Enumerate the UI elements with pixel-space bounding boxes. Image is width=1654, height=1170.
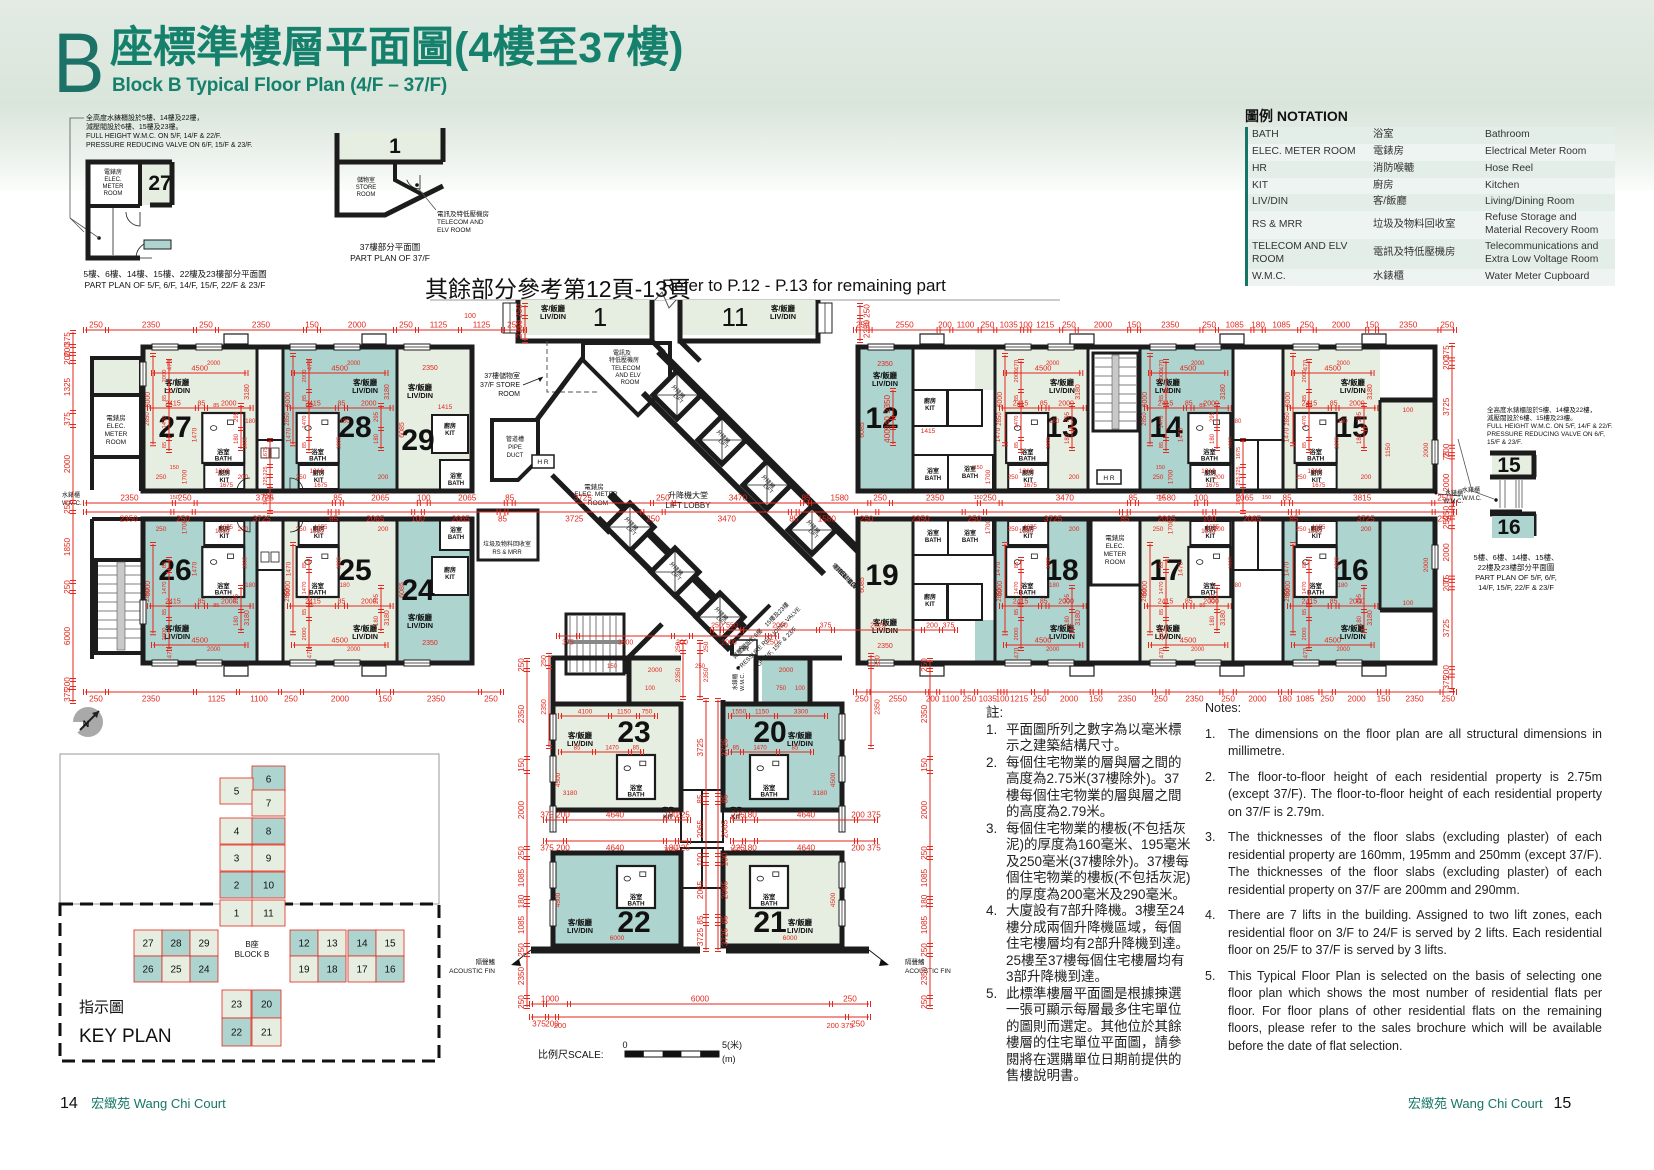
svg-text:1675: 1675 xyxy=(220,483,234,489)
svg-text:250: 250 xyxy=(1008,526,1019,533)
svg-text:4500: 4500 xyxy=(191,636,208,645)
svg-text:1310: 1310 xyxy=(1307,468,1322,475)
svg-text:2000: 2000 xyxy=(162,628,168,641)
svg-text:3725: 3725 xyxy=(696,927,705,946)
svg-text:1125: 1125 xyxy=(473,321,491,330)
svg-text:3725: 3725 xyxy=(574,494,593,503)
svg-text:2000: 2000 xyxy=(1302,628,1308,641)
svg-text:電錶房: 電錶房 xyxy=(1105,533,1125,542)
svg-text:廚房: 廚房 xyxy=(444,422,456,430)
svg-text:2000: 2000 xyxy=(721,640,737,647)
svg-text:295: 295 xyxy=(1210,593,1216,604)
svg-text:2550: 2550 xyxy=(895,321,914,330)
svg-text:85: 85 xyxy=(801,494,811,503)
svg-text:廚房: 廚房 xyxy=(924,593,936,601)
svg-text:250: 250 xyxy=(920,995,929,1009)
svg-text:200: 200 xyxy=(926,695,940,704)
svg-text:ELEC.: ELEC. xyxy=(104,177,122,183)
svg-text:ROOM: ROOM xyxy=(621,380,640,386)
svg-text:2350: 2350 xyxy=(863,319,872,338)
svg-text:1675: 1675 xyxy=(1023,483,1037,489)
svg-text:470: 470 xyxy=(1013,359,1020,370)
svg-text:H R: H R xyxy=(537,459,549,466)
svg-text:2000: 2000 xyxy=(1336,647,1350,653)
svg-text:470: 470 xyxy=(167,359,174,370)
svg-text:1605: 1605 xyxy=(337,437,343,449)
svg-text:2000: 2000 xyxy=(221,401,237,408)
svg-text:1125: 1125 xyxy=(430,321,448,330)
svg-text:2065: 2065 xyxy=(696,880,705,899)
svg-text:2065: 2065 xyxy=(1158,515,1177,524)
svg-text:2350: 2350 xyxy=(703,667,710,682)
svg-text:W.M.C.: W.M.C. xyxy=(1443,499,1463,505)
svg-text:37/F STORE: 37/F STORE xyxy=(480,382,520,389)
svg-text:13: 13 xyxy=(326,939,338,950)
svg-text:4500: 4500 xyxy=(1035,636,1052,645)
svg-text:ROOM: ROOM xyxy=(104,191,123,197)
svg-text:2000: 2000 xyxy=(1159,370,1165,383)
svg-text:3180: 3180 xyxy=(384,610,391,626)
svg-text:250: 250 xyxy=(1008,474,1019,481)
svg-text:2000: 2000 xyxy=(1046,647,1060,653)
svg-text:180: 180 xyxy=(1210,615,1216,626)
svg-text:減壓閥設於6樓、15樓及23樓。: 減壓閥設於6樓、15樓及23樓。 xyxy=(1487,413,1577,422)
svg-text:375: 375 xyxy=(943,623,955,630)
svg-text:1605: 1605 xyxy=(337,557,343,569)
svg-text:2000: 2000 xyxy=(1191,647,1205,653)
svg-text:250: 250 xyxy=(968,515,982,524)
svg-text:4640: 4640 xyxy=(797,844,816,853)
svg-text:2000: 2000 xyxy=(361,401,377,408)
svg-text:LIV/DIN: LIV/DIN xyxy=(872,379,898,388)
svg-text:1580: 1580 xyxy=(1157,494,1176,503)
svg-text:2000: 2000 xyxy=(1014,370,1020,383)
svg-text:2350: 2350 xyxy=(541,699,548,715)
svg-text:1675: 1675 xyxy=(1236,493,1242,505)
svg-text:85: 85 xyxy=(1014,395,1020,401)
svg-text:470: 470 xyxy=(307,647,314,658)
svg-text:ROOM: ROOM xyxy=(357,192,376,198)
svg-text:85: 85 xyxy=(162,442,168,448)
svg-text:180: 180 xyxy=(1049,583,1060,589)
svg-text:295: 295 xyxy=(1065,411,1071,422)
svg-text:15: 15 xyxy=(1497,454,1521,477)
svg-text:250: 250 xyxy=(656,494,670,503)
svg-text:PIPE: PIPE xyxy=(508,445,522,451)
svg-text:3180: 3180 xyxy=(244,384,251,400)
svg-text:水錶櫃: 水錶櫃 xyxy=(731,673,739,690)
svg-text:23: 23 xyxy=(231,1000,243,1011)
svg-text:BATH: BATH xyxy=(215,456,232,463)
svg-text:3300: 3300 xyxy=(794,709,809,716)
svg-text:2350: 2350 xyxy=(1161,321,1180,330)
svg-text:2000: 2000 xyxy=(347,647,361,653)
svg-text:3180: 3180 xyxy=(813,790,828,797)
svg-text:KIT: KIT xyxy=(925,406,935,412)
svg-text:250: 250 xyxy=(1033,695,1047,704)
svg-text:2350: 2350 xyxy=(675,667,682,682)
svg-text:廚房: 廚房 xyxy=(924,397,936,405)
svg-text:150: 150 xyxy=(607,664,618,670)
svg-text:電錶房: 電錶房 xyxy=(104,168,122,176)
svg-text:4500: 4500 xyxy=(1324,636,1341,645)
svg-text:180: 180 xyxy=(1338,419,1349,425)
svg-text:電錶房: 電錶房 xyxy=(106,413,126,422)
svg-text:3180: 3180 xyxy=(1075,384,1082,400)
svg-text:3725: 3725 xyxy=(1044,515,1063,524)
svg-text:1085: 1085 xyxy=(517,915,526,934)
svg-text:1470: 1470 xyxy=(1014,416,1020,429)
svg-text:LIV/DIN: LIV/DIN xyxy=(540,312,566,321)
svg-text:6000: 6000 xyxy=(285,392,292,408)
svg-text:0: 0 xyxy=(622,1040,627,1050)
svg-text:250: 250 xyxy=(484,695,498,704)
svg-text:4640: 4640 xyxy=(797,811,816,820)
svg-text:2000: 2000 xyxy=(302,370,308,383)
svg-text:85: 85 xyxy=(1302,442,1308,448)
svg-text:29: 29 xyxy=(401,424,434,457)
svg-text:2000: 2000 xyxy=(1060,695,1079,704)
svg-text:22: 22 xyxy=(231,1028,243,1039)
svg-text:LIV/DIN: LIV/DIN xyxy=(1049,386,1075,395)
svg-text:14/F, 15/F, 22/F & 23/F: 14/F, 15/F, 22/F & 23/F xyxy=(1478,583,1554,592)
svg-text:2350: 2350 xyxy=(1118,695,1137,704)
svg-text:6000: 6000 xyxy=(63,626,72,645)
svg-text:85: 85 xyxy=(574,746,581,752)
svg-text:200 375: 200 375 xyxy=(851,844,881,853)
svg-text:250: 250 xyxy=(156,474,167,481)
svg-text:180: 180 xyxy=(234,433,240,444)
svg-text:85: 85 xyxy=(1017,403,1023,409)
svg-text:2350: 2350 xyxy=(517,704,526,723)
svg-text:4100: 4100 xyxy=(578,709,593,716)
svg-text:295: 295 xyxy=(234,411,240,422)
svg-text:(m): (m) xyxy=(722,1054,736,1064)
svg-text:特低壓機房: 特低壓機房 xyxy=(609,356,639,364)
svg-text:250: 250 xyxy=(63,580,72,594)
svg-text:2350: 2350 xyxy=(422,640,438,647)
svg-text:180: 180 xyxy=(374,433,380,444)
svg-text:1415: 1415 xyxy=(438,404,453,411)
svg-text:1675: 1675 xyxy=(314,525,328,531)
svg-text:6000: 6000 xyxy=(783,935,798,942)
svg-text:3180: 3180 xyxy=(1367,610,1374,626)
svg-text:BATH: BATH xyxy=(962,474,978,480)
svg-text:2000: 2000 xyxy=(207,361,221,367)
svg-text:2850: 2850 xyxy=(1285,412,1291,426)
svg-text:2065: 2065 xyxy=(366,515,385,524)
svg-text:85: 85 xyxy=(789,515,799,524)
svg-text:250: 250 xyxy=(766,640,778,647)
svg-text:3815: 3815 xyxy=(1353,494,1372,503)
svg-text:2850: 2850 xyxy=(997,588,1003,602)
svg-text:250: 250 xyxy=(843,995,857,1004)
svg-text:1125: 1125 xyxy=(208,695,226,704)
svg-text:2000: 2000 xyxy=(1336,361,1350,367)
svg-text:2350: 2350 xyxy=(427,695,446,704)
svg-text:550: 550 xyxy=(726,623,738,630)
svg-text:85: 85 xyxy=(696,794,705,804)
svg-text:85: 85 xyxy=(1199,403,1205,409)
svg-text:85: 85 xyxy=(302,395,308,401)
svg-text:85: 85 xyxy=(308,403,314,409)
svg-text:85: 85 xyxy=(333,494,343,503)
svg-text:1470: 1470 xyxy=(1284,561,1291,576)
svg-text:4: 4 xyxy=(234,827,240,838)
svg-text:1: 1 xyxy=(234,909,240,920)
svg-text:250: 250 xyxy=(1300,321,1314,330)
svg-text:BATH: BATH xyxy=(215,590,232,597)
svg-text:1675: 1675 xyxy=(314,483,328,489)
svg-text:LIV/DIN: LIV/DIN xyxy=(407,391,433,400)
svg-text:管道槽: 管道槽 xyxy=(506,435,524,443)
svg-text:1675: 1675 xyxy=(1312,483,1326,489)
svg-text:2000: 2000 xyxy=(63,454,72,473)
svg-text:1100: 1100 xyxy=(250,695,268,704)
svg-text:180: 180 xyxy=(743,844,757,853)
svg-text:2350: 2350 xyxy=(1185,695,1204,704)
svg-text:4500: 4500 xyxy=(830,892,837,907)
svg-text:PART PLAN OF 37/F: PART PLAN OF 37/F xyxy=(350,253,430,263)
svg-text:250: 250 xyxy=(399,321,413,330)
svg-text:150: 150 xyxy=(974,465,983,471)
svg-text:180: 180 xyxy=(1357,615,1363,626)
svg-text:1470: 1470 xyxy=(1159,416,1165,429)
svg-text:ELEC.: ELEC. xyxy=(107,423,126,430)
svg-text:375: 375 xyxy=(562,640,574,647)
svg-text:1150: 1150 xyxy=(617,709,631,716)
svg-text:100: 100 xyxy=(696,852,705,866)
svg-text:180: 180 xyxy=(1065,615,1071,626)
svg-text:3725: 3725 xyxy=(721,927,730,946)
svg-text:BATH: BATH xyxy=(760,792,777,799)
svg-text:2350: 2350 xyxy=(920,704,929,723)
svg-text:2: 2 xyxy=(234,881,240,892)
svg-text:470: 470 xyxy=(307,359,314,370)
svg-text:29: 29 xyxy=(198,939,210,950)
svg-text:BATH: BATH xyxy=(1307,590,1324,597)
svg-text:1: 1 xyxy=(593,302,607,332)
svg-text:1470: 1470 xyxy=(1177,561,1184,576)
svg-text:85: 85 xyxy=(1159,609,1165,615)
svg-text:2000: 2000 xyxy=(1046,361,1060,367)
svg-text:85: 85 xyxy=(1283,494,1293,503)
svg-text:85: 85 xyxy=(213,403,219,409)
svg-text:19: 19 xyxy=(865,559,898,592)
svg-text:1085: 1085 xyxy=(517,868,526,887)
svg-text:180: 180 xyxy=(340,583,351,589)
svg-text:1605: 1605 xyxy=(1335,437,1341,449)
svg-text:全高度水錶櫃設於5樓、14樓及22樓，: 全高度水錶櫃設於5樓、14樓及22樓， xyxy=(86,113,203,122)
svg-text:470: 470 xyxy=(1158,647,1165,658)
svg-text:BATH: BATH xyxy=(925,538,941,544)
svg-text:250: 250 xyxy=(1153,474,1164,481)
svg-text:2000: 2000 xyxy=(1423,442,1430,457)
svg-text:2065: 2065 xyxy=(371,494,390,503)
svg-text:24: 24 xyxy=(401,574,435,607)
svg-text:METER: METER xyxy=(1104,551,1127,558)
svg-text:3725: 3725 xyxy=(721,738,730,757)
svg-text:3180: 3180 xyxy=(384,384,391,400)
svg-text:BATH: BATH xyxy=(962,538,978,544)
svg-text:1215: 1215 xyxy=(1036,321,1055,330)
svg-text:LIV/DIN: LIV/DIN xyxy=(407,621,433,630)
svg-text:15/F & 23/F.: 15/F & 23/F. xyxy=(1487,439,1522,446)
svg-text:250: 250 xyxy=(199,321,213,330)
svg-text:2350: 2350 xyxy=(920,966,929,985)
svg-text:2350: 2350 xyxy=(877,361,893,368)
svg-text:180: 180 xyxy=(234,615,240,626)
svg-text:2850: 2850 xyxy=(1285,588,1291,602)
svg-text:100: 100 xyxy=(721,852,730,866)
svg-text:295: 295 xyxy=(374,411,380,422)
svg-text:ROOM: ROOM xyxy=(498,391,520,398)
svg-text:750: 750 xyxy=(642,709,653,716)
svg-text:375: 375 xyxy=(532,1020,546,1029)
svg-text:100: 100 xyxy=(1194,494,1208,503)
svg-text:400: 400 xyxy=(883,429,892,443)
svg-text:375: 375 xyxy=(1442,676,1451,690)
svg-text:2415: 2415 xyxy=(165,599,181,606)
svg-text:85: 85 xyxy=(696,915,705,925)
svg-text:470: 470 xyxy=(1013,647,1020,658)
svg-text:升降機大堂: 升降機大堂 xyxy=(668,490,708,500)
svg-text:3725: 3725 xyxy=(253,515,272,524)
svg-text:1675: 1675 xyxy=(1312,525,1326,531)
svg-text:5樓、6樓、14樓、15樓、22樓及23樓部分平面圖: 5樓、6樓、14樓、15樓、22樓及23樓部分平面圖 xyxy=(83,269,266,279)
svg-text:180: 180 xyxy=(1251,321,1265,330)
svg-text:1035: 1035 xyxy=(979,695,998,704)
svg-text:STORE: STORE xyxy=(356,185,377,191)
svg-text:17: 17 xyxy=(356,965,368,976)
svg-text:200: 200 xyxy=(554,1021,567,1030)
svg-text:2350: 2350 xyxy=(120,515,139,524)
svg-text:KIT: KIT xyxy=(445,431,455,437)
svg-text:6085: 6085 xyxy=(399,582,406,598)
svg-text:電訊及特低壓機房: 電訊及特低壓機房 xyxy=(437,209,489,218)
svg-text:1085: 1085 xyxy=(1272,321,1291,330)
svg-text:250: 250 xyxy=(156,526,167,533)
svg-text:FULL HEIGHT W.M.C. ON 5/F, 14/: FULL HEIGHT W.M.C. ON 5/F, 14/F & 22/F. xyxy=(86,133,221,140)
svg-text:2000: 2000 xyxy=(1332,321,1351,330)
svg-text:85: 85 xyxy=(1014,442,1020,448)
svg-text:200: 200 xyxy=(1361,526,1372,533)
svg-text:250: 250 xyxy=(711,623,723,630)
svg-text:PART PLAN OF 5/F, 6/F, 14/F, 1: PART PLAN OF 5/F, 6/F, 14/F, 15/F, 22/F … xyxy=(85,280,266,290)
svg-text:2000: 2000 xyxy=(348,321,367,330)
svg-text:BATH: BATH xyxy=(309,456,326,463)
svg-text:LIV/DIN: LIV/DIN xyxy=(567,926,593,935)
svg-text:比例尺SCALE:: 比例尺SCALE: xyxy=(538,1048,604,1061)
svg-text:250: 250 xyxy=(920,943,929,957)
svg-text:28: 28 xyxy=(338,411,371,444)
svg-text:ELEC.: ELEC. xyxy=(1106,543,1125,550)
svg-text:5(米): 5(米) xyxy=(722,1039,742,1050)
svg-text:12: 12 xyxy=(298,939,310,950)
svg-text:隔聲鰭: 隔聲鰭 xyxy=(476,957,496,966)
svg-text:DUCT: DUCT xyxy=(507,453,524,459)
svg-text:1085: 1085 xyxy=(920,915,929,934)
svg-text:1675: 1675 xyxy=(263,493,269,505)
svg-text:浴室: 浴室 xyxy=(450,472,462,480)
svg-text:1605: 1605 xyxy=(1046,557,1052,569)
svg-text:150: 150 xyxy=(974,495,983,501)
svg-text:1310: 1310 xyxy=(1019,468,1034,475)
svg-text:4500: 4500 xyxy=(555,892,562,907)
svg-text:1580: 1580 xyxy=(831,494,850,503)
svg-text:2850: 2850 xyxy=(285,412,291,426)
svg-text:2000: 2000 xyxy=(162,370,168,383)
svg-text:3470: 3470 xyxy=(1056,494,1075,503)
svg-text:2000: 2000 xyxy=(1302,370,1308,383)
svg-text:180: 180 xyxy=(1049,419,1060,425)
svg-text:METER: METER xyxy=(105,431,128,438)
svg-text:150: 150 xyxy=(378,695,392,704)
svg-text:1605: 1605 xyxy=(1335,557,1341,569)
svg-text:BATH: BATH xyxy=(925,476,941,482)
svg-text:KEY PLAN: KEY PLAN xyxy=(79,1026,172,1047)
svg-text:2625: 2625 xyxy=(870,623,886,630)
svg-text:2350: 2350 xyxy=(1399,321,1418,330)
svg-text:150: 150 xyxy=(1365,321,1379,330)
svg-text:85: 85 xyxy=(733,746,740,752)
svg-text:浴室: 浴室 xyxy=(927,467,939,475)
svg-text:1675: 1675 xyxy=(1206,525,1220,531)
svg-text:180: 180 xyxy=(245,419,256,425)
svg-text:KIT: KIT xyxy=(445,575,455,581)
svg-text:2850: 2850 xyxy=(1142,412,1148,426)
svg-text:18: 18 xyxy=(326,965,338,976)
svg-text:1415: 1415 xyxy=(921,428,936,435)
svg-text:BATH: BATH xyxy=(448,481,464,487)
svg-text:180: 180 xyxy=(374,615,380,626)
svg-text:1700: 1700 xyxy=(1167,469,1174,484)
svg-text:200: 200 xyxy=(378,474,389,481)
svg-text:5: 5 xyxy=(234,787,240,798)
svg-text:1150: 1150 xyxy=(1385,443,1392,457)
svg-text:85: 85 xyxy=(505,494,515,503)
svg-text:1100: 1100 xyxy=(957,321,975,330)
svg-text:85: 85 xyxy=(633,746,640,752)
svg-text:295: 295 xyxy=(374,593,380,604)
svg-text:250: 250 xyxy=(860,515,874,524)
svg-text:4500: 4500 xyxy=(555,772,562,787)
svg-text:3: 3 xyxy=(234,854,240,865)
svg-text:12: 12 xyxy=(865,402,898,435)
svg-text:85: 85 xyxy=(308,603,314,609)
svg-text:9: 9 xyxy=(266,854,272,865)
svg-text:100: 100 xyxy=(1403,600,1414,607)
svg-text:7: 7 xyxy=(266,799,272,810)
svg-text:11: 11 xyxy=(722,302,749,332)
svg-text:200: 200 xyxy=(926,623,938,630)
svg-text:19: 19 xyxy=(298,965,310,976)
svg-text:TELECOM AND: TELECOM AND xyxy=(437,219,484,226)
svg-text:21: 21 xyxy=(753,906,786,939)
svg-text:ROOM: ROOM xyxy=(1105,559,1125,566)
svg-text:250: 250 xyxy=(1202,321,1216,330)
svg-text:21: 21 xyxy=(261,1028,273,1039)
svg-text:85: 85 xyxy=(1306,403,1312,409)
svg-text:375: 375 xyxy=(820,623,832,630)
svg-text:150: 150 xyxy=(1127,321,1141,330)
svg-text:3800: 3800 xyxy=(618,640,634,647)
svg-text:28: 28 xyxy=(170,939,182,950)
svg-text:470: 470 xyxy=(1302,359,1309,370)
svg-text:1085: 1085 xyxy=(920,868,929,887)
svg-text:295: 295 xyxy=(234,593,240,604)
svg-text:BATH: BATH xyxy=(448,535,464,541)
